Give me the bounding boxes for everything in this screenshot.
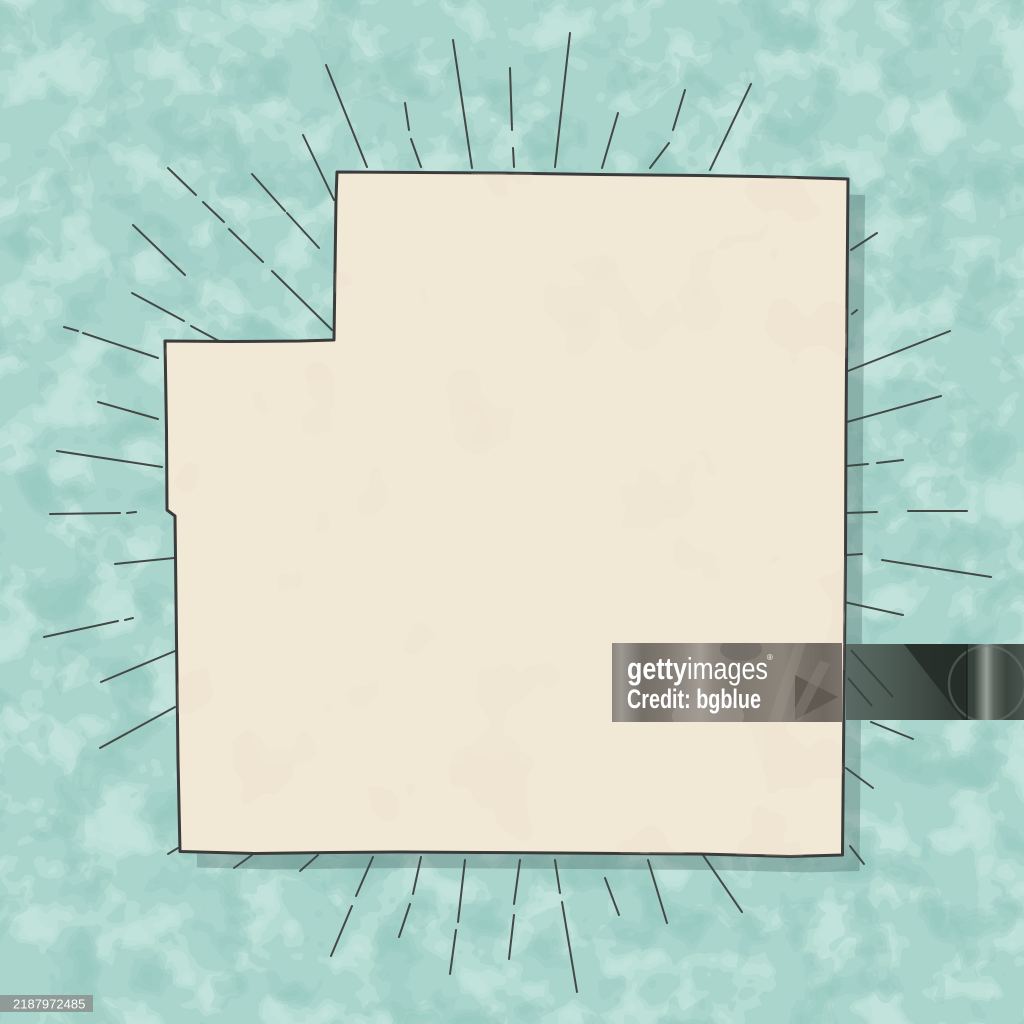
svg-text:images: images (687, 651, 768, 686)
svg-text:®: ® (767, 653, 773, 662)
svg-text:Credit: bgblue: Credit: bgblue (627, 684, 761, 714)
svg-text:getty: getty (627, 651, 688, 686)
svg-text:2187972485: 2187972485 (13, 997, 85, 1012)
